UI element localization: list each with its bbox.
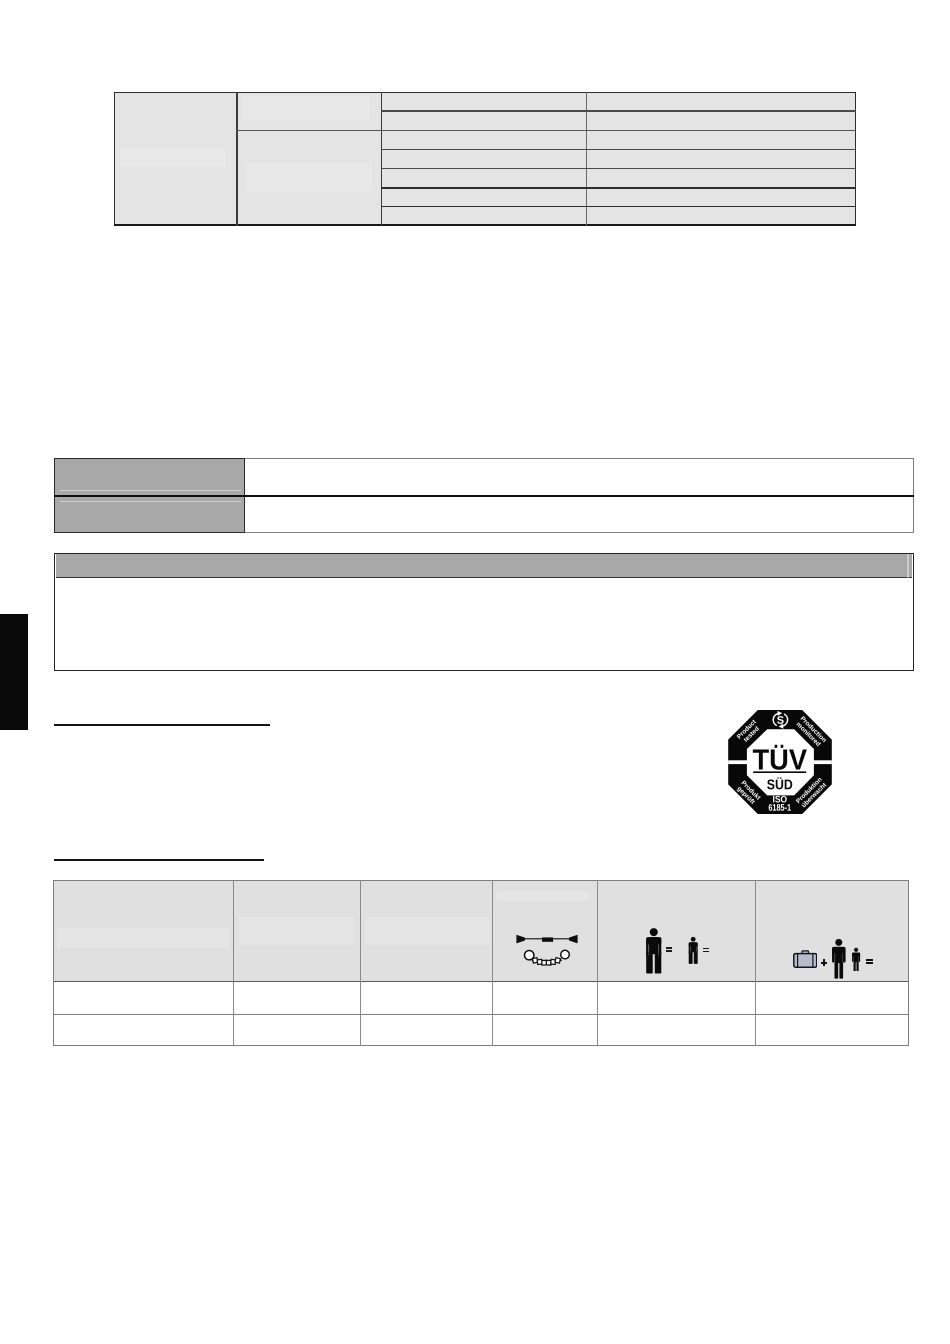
svg-text:SÜD: SÜD <box>767 776 793 792</box>
svg-text:6185-1: 6185-1 <box>768 801 791 812</box>
svg-text:TÜV: TÜV <box>752 743 807 776</box>
